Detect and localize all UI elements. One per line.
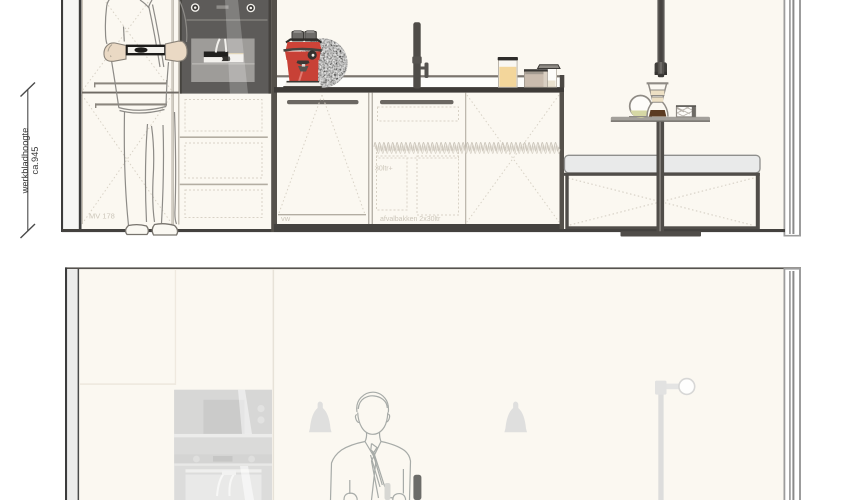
svg-text:afvalbakken 2x30ltr: afvalbakken 2x30ltr bbox=[380, 216, 441, 223]
svg-text:30ltr+: 30ltr+ bbox=[375, 166, 393, 173]
svg-text:ca.945: ca.945 bbox=[30, 147, 40, 175]
svg-text:vw: vw bbox=[281, 214, 291, 223]
svg-text:MV 178: MV 178 bbox=[89, 212, 115, 221]
svg-text:werkbladhoogte: werkbladhoogte bbox=[20, 128, 30, 195]
